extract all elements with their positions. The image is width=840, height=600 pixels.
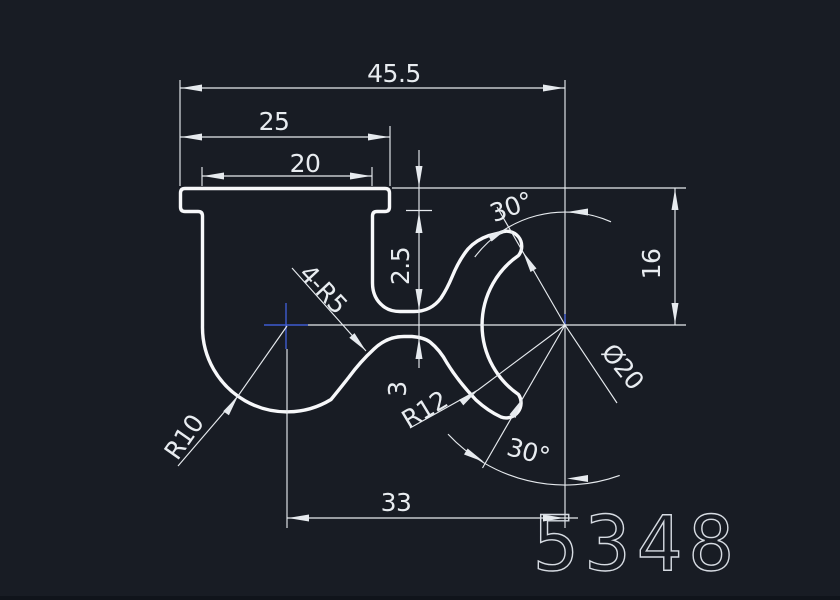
dim-mouth-diameter-label: Ø20 bbox=[596, 338, 650, 395]
dim-radius-bottom: R10 bbox=[158, 326, 287, 466]
dim-web-thickness-label: 3 bbox=[383, 381, 412, 396]
dim-mouth-diameter: Ø20 bbox=[510, 252, 650, 418]
dim-radius-arm: R12 bbox=[397, 325, 565, 434]
dim-wall-span-label: 20 bbox=[290, 149, 321, 178]
center-cross bbox=[264, 303, 308, 349]
window-bottom-edge bbox=[0, 596, 840, 600]
dim-bottom-width-label: 33 bbox=[381, 488, 412, 517]
dim-flange-thickness-label: 2.5 bbox=[386, 247, 415, 285]
part-number: 5348 bbox=[533, 499, 740, 588]
dim-web-thickness: 3 bbox=[383, 289, 423, 397]
dim-angle-top-label: 30° bbox=[486, 186, 536, 228]
dim-flange-width-label: 25 bbox=[259, 107, 290, 136]
dim-wall-span: 20 bbox=[202, 149, 372, 180]
dim-fillets: 4-R5 bbox=[292, 259, 366, 351]
dim-right-height-label: 16 bbox=[637, 249, 666, 280]
dim-angle-bottom: 30° bbox=[448, 325, 620, 485]
dim-total-width-label: 45.5 bbox=[367, 59, 421, 88]
dim-fillets-label: 4-R5 bbox=[293, 259, 353, 320]
cad-canvas: 45.5 25 20 2.5 3 16 33 bbox=[0, 0, 840, 600]
dim-right-height: 16 bbox=[637, 188, 679, 325]
drawing-svg: 45.5 25 20 2.5 3 16 33 bbox=[0, 0, 840, 600]
dim-flange-thickness: 2.5 bbox=[386, 166, 423, 285]
dim-total-width: 45.5 bbox=[180, 59, 565, 92]
profile-outline bbox=[181, 189, 522, 418]
dim-angle-bottom-label: 30° bbox=[504, 432, 553, 471]
dim-flange-width: 25 bbox=[180, 107, 390, 141]
dim-radius-bottom-label: R10 bbox=[158, 409, 209, 465]
